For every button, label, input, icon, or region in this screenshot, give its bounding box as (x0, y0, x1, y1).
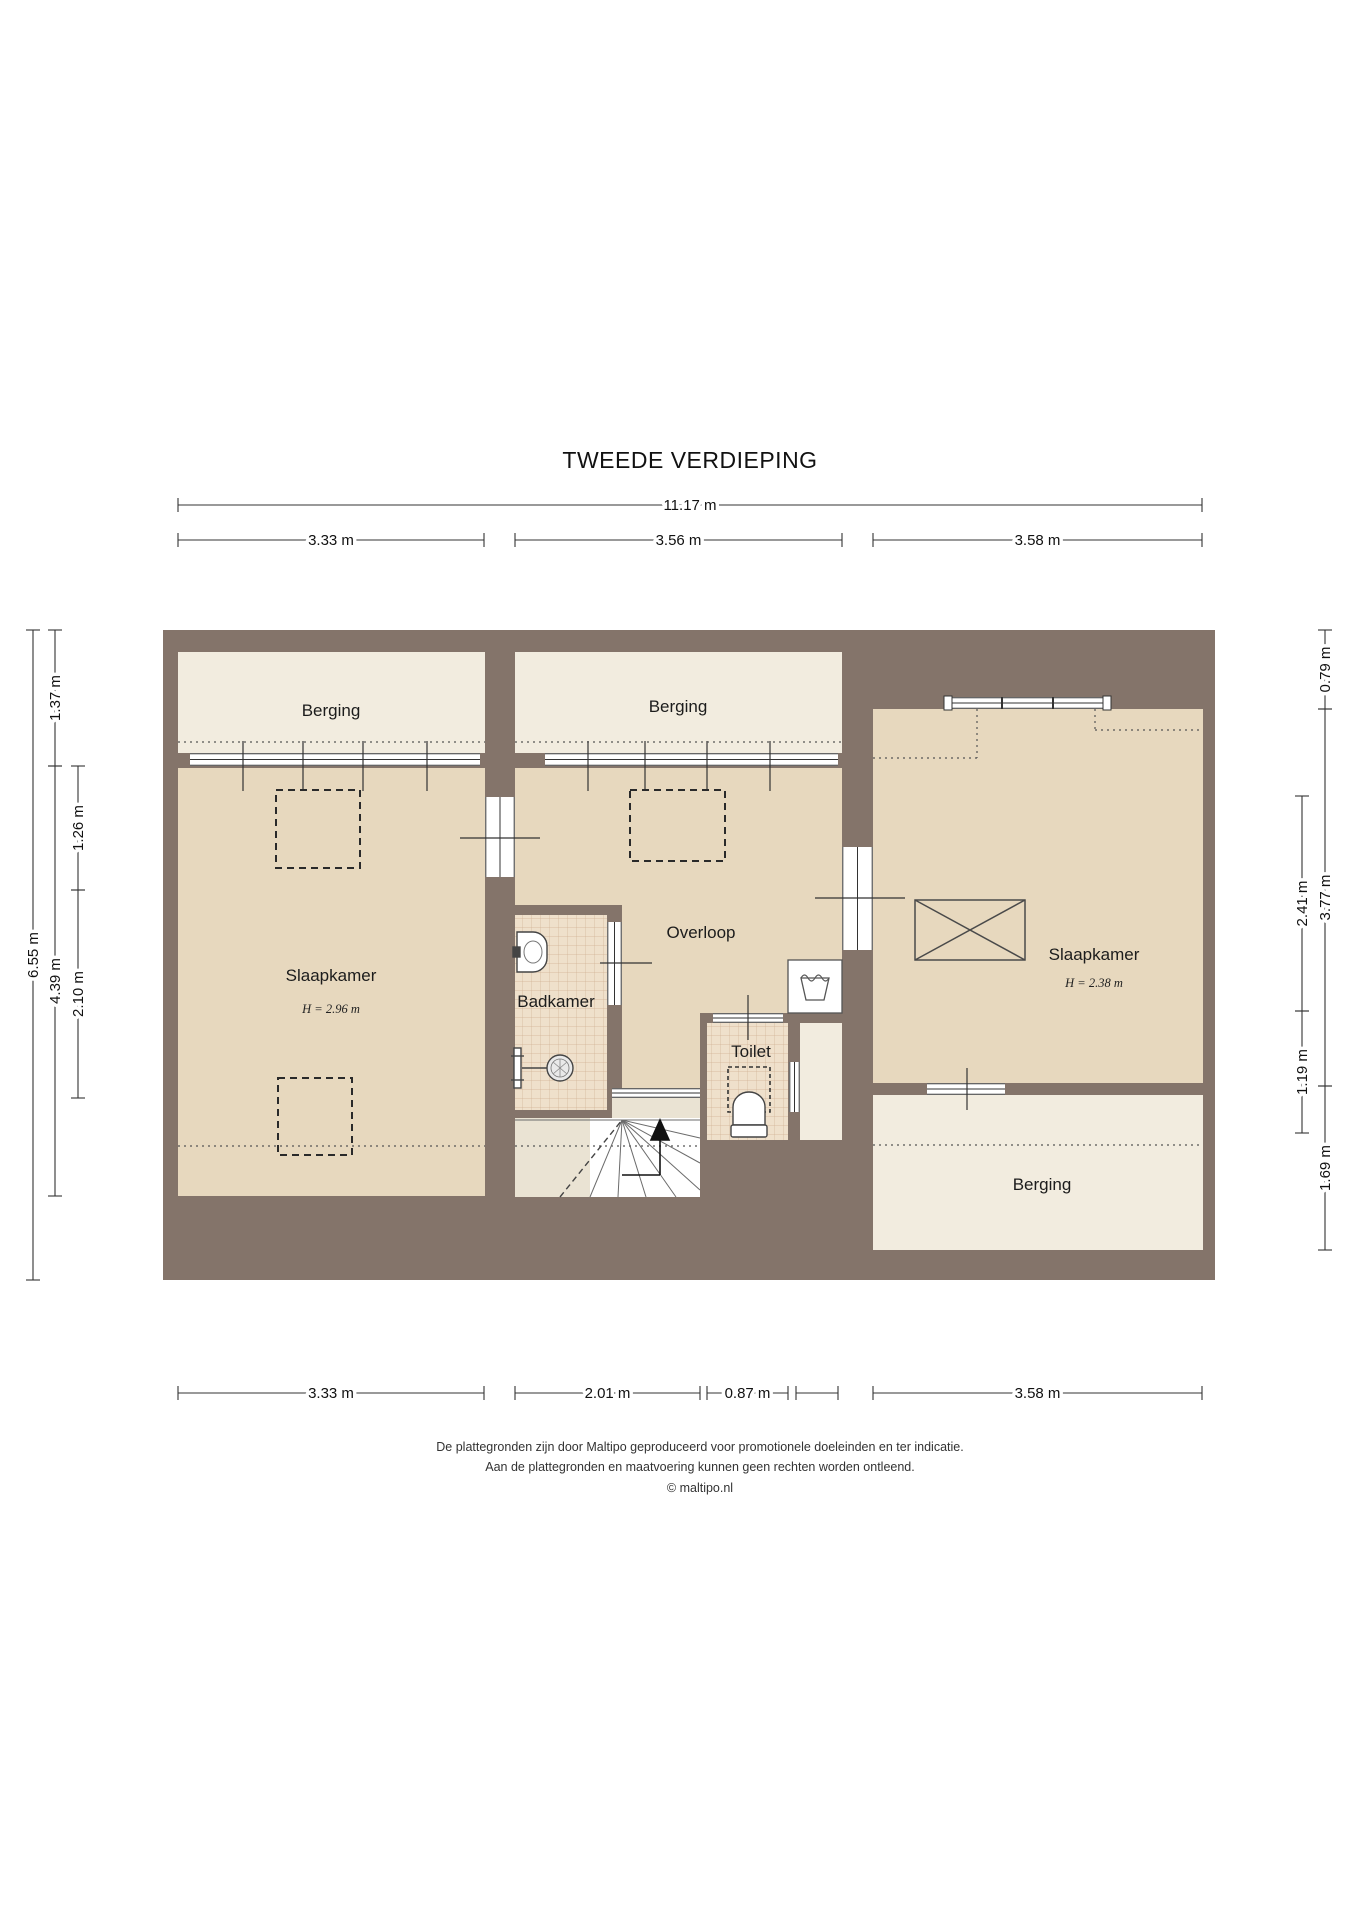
svg-text:1.37 m: 1.37 m (47, 675, 64, 721)
room-label-berging-right: Berging (1013, 1175, 1072, 1194)
stair-landing (612, 1098, 700, 1118)
dim-left-inner-2: 2.10 m (70, 890, 87, 1098)
footer-line-2: Aan de plattegronden en maatvoering kunn… (0, 1457, 1358, 1477)
dim-top-seg-1: 3.33 m (178, 532, 484, 549)
glass-wall-berging-middle (545, 753, 838, 766)
dim-bottom-seg-3: 0.87 m (707, 1385, 788, 1402)
washbasin (513, 932, 547, 972)
door-closet (789, 1062, 800, 1112)
svg-text:3.77 m: 3.77 m (1317, 875, 1334, 921)
stairwell-side (515, 1118, 590, 1197)
dim-bottom-leader (796, 1386, 838, 1400)
closet-floor (800, 1023, 842, 1140)
svg-text:0.87 m: 0.87 m (725, 1385, 771, 1402)
room-floor (873, 1095, 1203, 1250)
washing-machine (788, 960, 842, 1013)
room-berging-right (873, 1095, 1203, 1250)
stair-balustrade (612, 1088, 700, 1098)
svg-text:1.19 m: 1.19 m (1294, 1049, 1311, 1095)
svg-text:1.69 m: 1.69 m (1317, 1145, 1334, 1191)
svg-text:6.55 m: 6.55 m (25, 932, 42, 978)
dim-top-seg-3: 3.58 m (873, 532, 1202, 549)
svg-text:2.10 m: 2.10 m (70, 971, 87, 1017)
room-slaapkamer-right (873, 709, 1203, 1083)
room-floor (873, 709, 1203, 1083)
room-height-slaapkamer-right: H = 2.38 m (1064, 976, 1123, 990)
floorplan-drawing: BergingBergingSlaapkamerH = 2.96 mOverlo… (0, 0, 1358, 1920)
dim-right-outer-2: 3.77 m (1317, 709, 1334, 1086)
svg-text:4.39 m: 4.39 m (47, 958, 64, 1004)
door-slaapkamer-left (485, 797, 515, 877)
window-berging-right (927, 1083, 1005, 1095)
svg-text:1.26 m: 1.26 m (70, 805, 87, 851)
svg-text:3.58 m: 3.58 m (1015, 1385, 1061, 1402)
footer-copyright: © maltipo.nl (0, 1478, 1358, 1498)
room-label-slaapkamer-left: Slaapkamer (286, 966, 377, 985)
dim-left-inner-1: 1.26 m (70, 766, 87, 890)
room-floor (515, 768, 842, 905)
dim-right-inner-1: 2.41 m (1294, 796, 1311, 1011)
dim-right-outer-3: 1.69 m (1317, 1086, 1334, 1250)
room-label-badkamer: Badkamer (517, 992, 595, 1011)
room-label-overloop: Overloop (667, 923, 736, 942)
room-height-slaapkamer-left: H = 2.96 m (301, 1002, 360, 1016)
svg-text:2.41 m: 2.41 m (1294, 881, 1311, 927)
dim-right-outer-1: 0.79 m (1317, 630, 1334, 709)
dim-top-total: 11.17 m (178, 497, 1202, 514)
svg-text:3.33 m: 3.33 m (308, 1385, 354, 1402)
room-label-slaapkamer-right: Slaapkamer (1049, 945, 1140, 964)
room-label-toilet: Toilet (731, 1042, 771, 1061)
svg-text:3.33 m: 3.33 m (308, 532, 354, 549)
dim-right-inner-2: 1.19 m (1294, 1011, 1311, 1133)
footer-disclaimer: De plattegronden zijn door Maltipo gepro… (0, 1437, 1358, 1498)
dim-bottom-seg-2: 2.01 m (515, 1385, 700, 1402)
dim-left-mid-1: 1.37 m (47, 630, 64, 766)
svg-text:11.17 m: 11.17 m (663, 497, 716, 514)
svg-text:2.01 m: 2.01 m (585, 1385, 631, 1402)
dim-top-seg-2: 3.56 m (515, 532, 842, 549)
svg-text:0.79 m: 0.79 m (1317, 647, 1334, 693)
floorplan-page: TWEEDE VERDIEPING BergingBergingSlaapkam… (0, 0, 1358, 1920)
svg-text:3.56 m: 3.56 m (656, 532, 702, 549)
glass-wall-berging-left (190, 753, 480, 766)
roof-window-strip (944, 696, 1111, 710)
dim-bottom-seg-4: 3.58 m (873, 1385, 1202, 1402)
dim-left-mid-2: 4.39 m (47, 766, 64, 1196)
dim-bottom-seg-1: 3.33 m (178, 1385, 484, 1402)
dim-left-total: 6.55 m (25, 630, 42, 1280)
svg-text:3.58 m: 3.58 m (1015, 532, 1061, 549)
room-label-berging-left: Berging (302, 701, 361, 720)
room-label-berging-middle: Berging (649, 697, 708, 716)
footer-line-1: De plattegronden zijn door Maltipo gepro… (0, 1437, 1358, 1457)
plan-root: BergingBergingSlaapkamerH = 2.96 mOverlo… (25, 497, 1334, 1402)
